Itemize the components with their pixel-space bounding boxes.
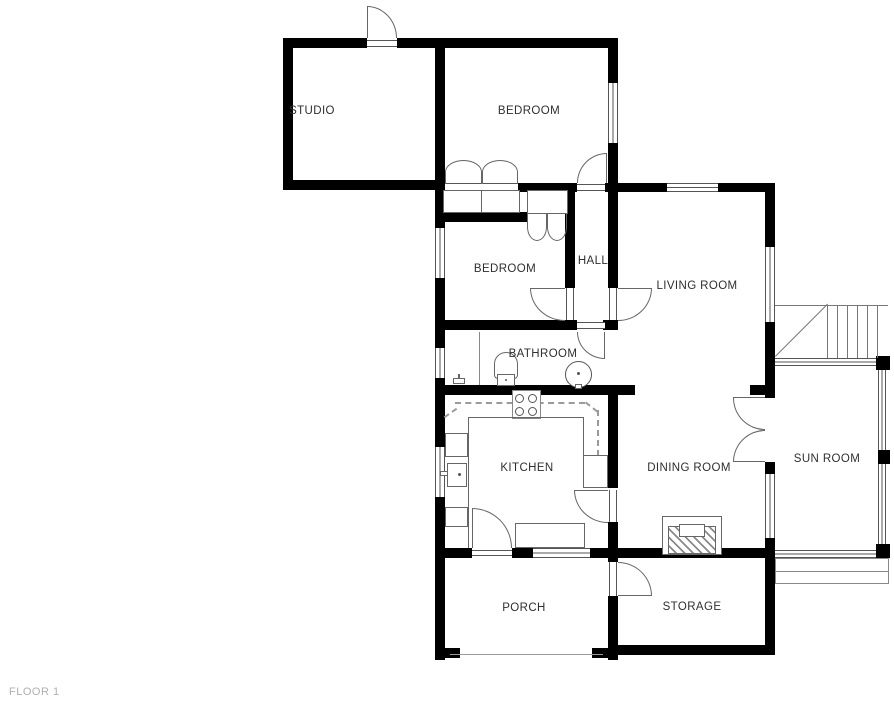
bedroom-hall-door [577,153,607,183]
stove-burner [515,394,524,403]
valve-stem [458,374,460,378]
room-label-sun-room: SUN ROOM [767,453,887,465]
counter-bottom [515,523,585,548]
sink-faucet [575,384,582,389]
sink-drain [577,372,580,375]
wall [435,320,577,330]
stairs-tread [847,305,848,358]
closet-bifold-left [527,213,547,241]
porch-threshold-line [450,654,603,655]
stove-burner [528,407,537,416]
fireplace-opening [679,524,705,537]
door-jamb [577,322,605,329]
room-label-bedroom-mid: BEDROOM [445,263,565,275]
wall [590,548,618,558]
window [435,348,445,378]
storage-door [618,562,652,596]
wall [283,38,367,48]
window [878,464,886,544]
sunroom-french-door-upper [733,398,765,430]
room-label-hall: HALL [573,255,613,267]
counter-edge [468,417,584,418]
stairs-stringer [775,305,888,306]
stairs-tread [837,305,838,358]
kitchen-sink [447,463,467,487]
room-label-studio: STUDIO [252,105,372,117]
wall [435,278,445,348]
window [878,370,886,450]
studio-exterior-door [367,6,397,38]
door-jamb [577,184,605,191]
door-jamb [609,490,617,522]
stairs-tread [867,305,868,358]
window [775,550,876,558]
door-jamb [472,550,512,556]
valve-fixture [453,378,465,384]
stairs-winder [775,304,828,357]
wall [608,645,775,655]
stairs-tread [877,305,878,358]
wall [592,648,608,658]
toilet-button [505,379,507,381]
wall [445,648,460,658]
wall [435,548,472,558]
wall [283,180,445,190]
wardrobe-divider [481,190,482,213]
wall [397,38,618,48]
room-label-bathroom: BATHROOM [483,348,603,360]
room-label-kitchen: KITCHEN [467,462,587,474]
room-label-porch: PORCH [464,602,584,614]
bedroom2-door [530,288,565,321]
upper-cabinet-dashed-corner [585,402,598,413]
sunroom-step-line [775,571,889,572]
stove-burner [528,394,537,403]
closet-bifold-right [547,213,567,241]
wall [608,395,618,488]
shower-partition [479,332,480,385]
window [667,183,718,192]
kitchen-sink-drain [458,473,461,476]
wall [765,183,775,247]
window [765,247,775,322]
door-jamb [367,40,397,47]
sunroom-door-leaf [733,397,765,398]
counter-edge [468,417,469,548]
wardrobe-door-right [482,160,518,184]
wall [435,497,445,660]
closet [527,190,568,214]
floor-plan: STUDIO BEDROOM BEDROOM HALL LIVING ROOM … [0,0,894,711]
kitchen-porch-door [472,508,512,548]
window [533,548,590,558]
wall [618,183,667,192]
counter-edge [583,417,584,455]
kitchen-appliance [445,433,468,457]
upper-cabinet-dashed-line [597,410,599,456]
window [765,474,775,538]
wall [765,322,775,358]
wall [608,38,618,83]
kitchen-appliance [445,507,468,527]
kitchen-dining-door [574,490,608,523]
room-label-bedroom-top: BEDROOM [469,105,589,117]
door-jamb [609,288,617,320]
wall [603,320,618,330]
room-label-storage: STORAGE [632,601,752,613]
wall [608,190,618,288]
wall [435,212,527,222]
window [435,228,445,278]
stove-burner [515,407,524,416]
wall [765,548,775,655]
stairs-tread [857,305,858,358]
kitchen-sink-faucet [440,471,448,476]
floor-label: FLOOR 1 [9,686,60,698]
wall [765,358,775,398]
door-jamb [566,288,574,320]
wall [512,548,533,558]
room-label-dining-room: DINING ROOM [629,462,749,474]
upper-cabinet-dashed-corner [444,408,457,418]
room-label-living-room: LIVING ROOM [637,280,757,292]
sunroom-french-door-lower [733,430,765,462]
wall [876,356,890,370]
stairs-tread [827,305,828,358]
door-jamb [609,562,617,596]
window [608,83,618,143]
living-room-door [618,288,652,321]
wardrobe-door-left [445,160,482,184]
window [775,358,876,366]
wall [876,544,890,558]
